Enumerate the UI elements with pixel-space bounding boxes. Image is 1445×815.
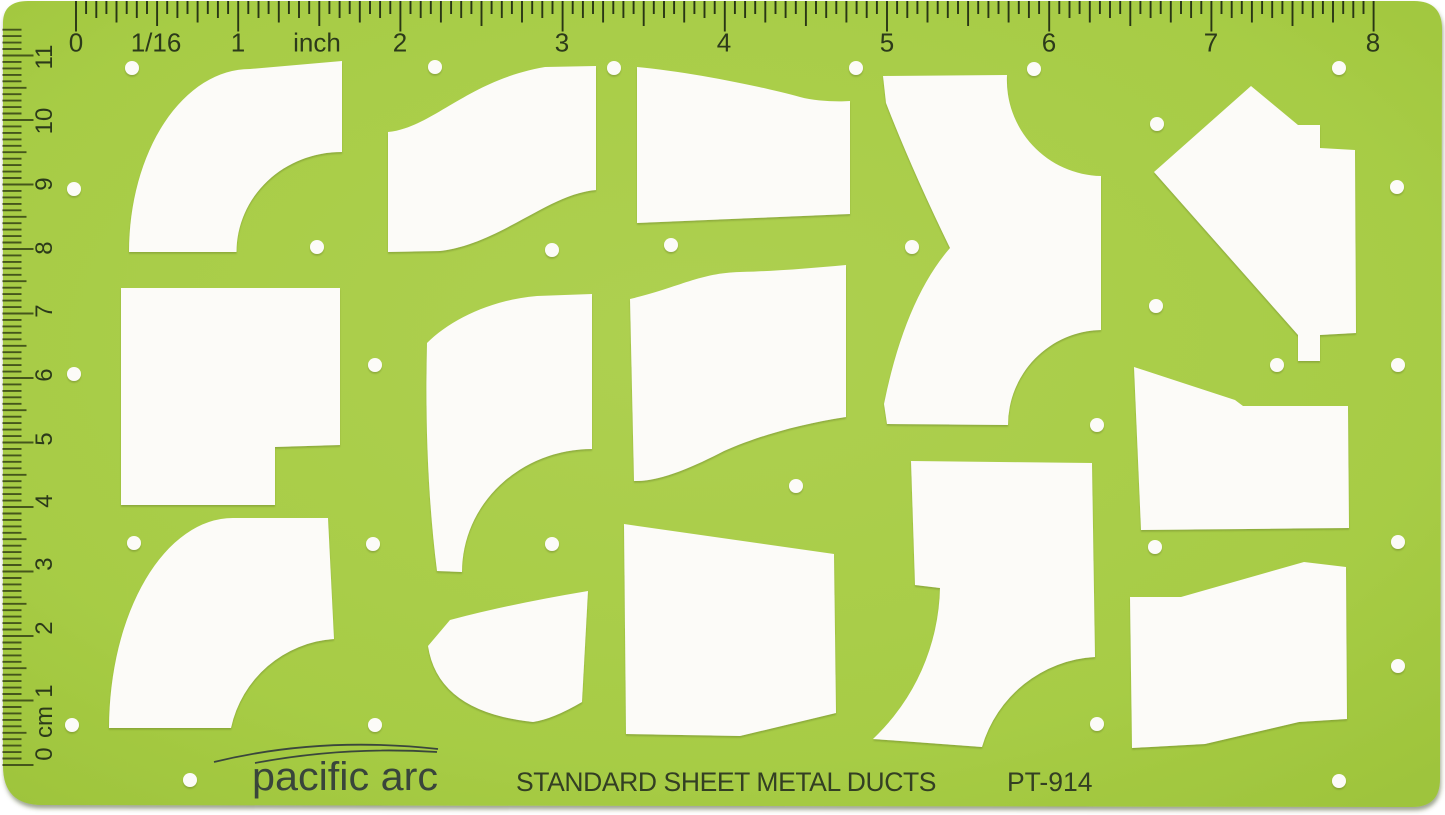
svg-text:4: 4 (717, 28, 731, 58)
svg-text:10: 10 (31, 108, 58, 135)
svg-text:2: 2 (393, 28, 407, 58)
svg-text:8: 8 (1366, 28, 1380, 58)
svg-text:11: 11 (31, 45, 58, 70)
svg-text:4: 4 (31, 494, 58, 507)
svg-text:6: 6 (31, 368, 58, 381)
svg-text:inch: inch (293, 28, 341, 58)
svg-text:7: 7 (1204, 28, 1218, 58)
svg-text:5: 5 (31, 432, 58, 445)
svg-text:9: 9 (31, 177, 58, 190)
svg-text:1: 1 (231, 28, 245, 58)
svg-text:5: 5 (880, 28, 894, 58)
svg-text:pacific arc: pacific arc (252, 755, 438, 799)
svg-text:STANDARD SHEET METAL DUCTS: STANDARD SHEET METAL DUCTS (516, 767, 936, 797)
svg-text:cm: cm (31, 706, 58, 738)
svg-text:1/16: 1/16 (131, 28, 182, 58)
svg-text:0: 0 (69, 28, 83, 58)
svg-text:7: 7 (31, 304, 58, 317)
svg-text:3: 3 (31, 557, 58, 570)
svg-text:6: 6 (1042, 28, 1056, 58)
svg-text:8: 8 (31, 241, 58, 254)
svg-text:1: 1 (31, 684, 58, 697)
svg-text:2: 2 (31, 621, 58, 634)
svg-text:0: 0 (31, 747, 58, 760)
svg-text:3: 3 (555, 28, 569, 58)
svg-text:PT-914: PT-914 (1007, 767, 1092, 797)
